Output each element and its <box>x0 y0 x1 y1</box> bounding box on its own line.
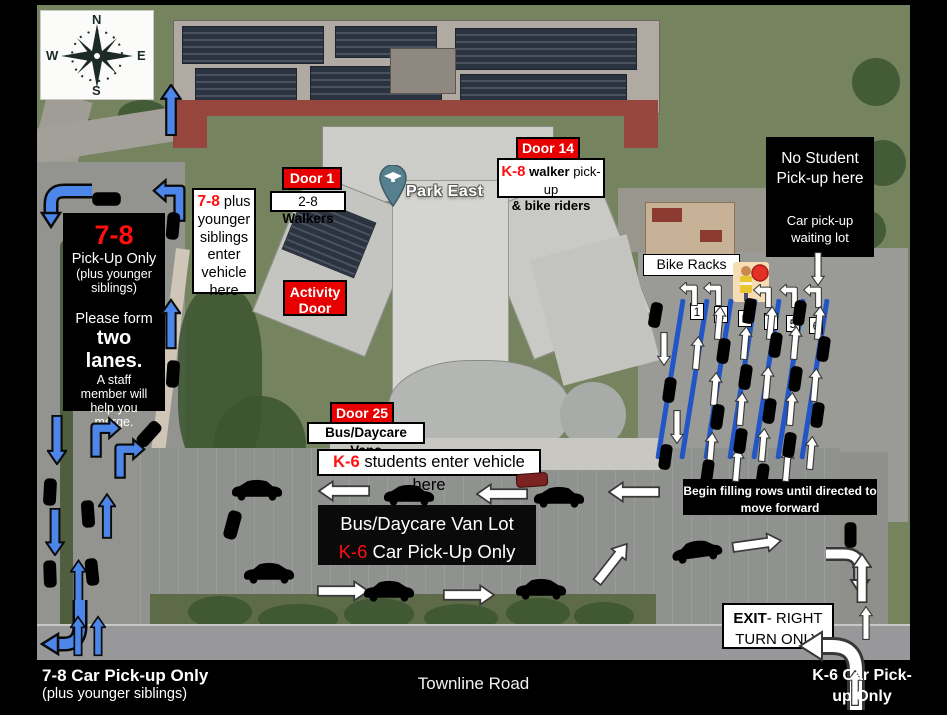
bus-daycare-vans-label: Bus/Daycare Vans <box>307 422 425 444</box>
car-icon <box>808 399 827 431</box>
no-student-box: No Student Pick-up here Car pick-up wait… <box>766 137 874 257</box>
car-icon <box>766 329 785 361</box>
door-25-text: Door 25 <box>336 405 388 421</box>
hook-left-arrow-icon <box>702 282 724 306</box>
pickup-78-panel: 7-8 Pick-Up Only (plus younger siblings)… <box>63 213 165 411</box>
k8-line2: & bike riders <box>499 198 603 215</box>
compass-e: E <box>137 48 146 63</box>
van-lot-grade: K-6 <box>339 541 368 562</box>
up-arrow-icon <box>805 367 826 402</box>
exit-bold: EXIT <box>733 610 766 627</box>
up-arrow-icon <box>852 552 872 604</box>
down-arrow-icon <box>668 410 686 444</box>
left-arrow-icon <box>608 481 660 503</box>
up-arrow-icon <box>687 335 708 370</box>
compass-s: S <box>92 83 101 98</box>
car-icon <box>786 363 805 395</box>
van-lot-text: Car Pick-Up Only <box>367 541 515 562</box>
up-arrow-icon <box>160 84 182 136</box>
car-icon <box>164 209 183 242</box>
down-arrow-icon <box>655 332 673 366</box>
car-icon <box>41 476 59 509</box>
walkers-28-label: 2-8 Walkers <box>270 191 346 212</box>
enter-78-grade: 7-8 <box>197 193 219 210</box>
car-icon <box>220 506 245 543</box>
k8-bold: walker <box>526 164 570 179</box>
car-icon <box>512 576 570 602</box>
car-icon <box>760 395 779 427</box>
right-arrow-icon <box>443 584 495 606</box>
panel-line: Please form <box>67 311 161 327</box>
down-arrow-icon <box>808 252 828 286</box>
down-arrow-icon <box>47 415 67 465</box>
car-icon <box>790 297 809 329</box>
k6-enter-box: K-6 students enter vehicle here <box>317 449 541 476</box>
no-student-title: No Student Pick-up here <box>772 149 868 189</box>
up-arrow-icon <box>753 427 774 462</box>
car-icon <box>736 361 755 393</box>
k8-grade: K-8 <box>501 163 525 180</box>
right-arrow-icon <box>727 530 787 558</box>
footer-right: K-6 Car Pick-up Only <box>810 666 914 708</box>
car-icon <box>814 333 833 365</box>
car-icon <box>646 299 666 331</box>
compass-rose: N S W E <box>40 10 154 100</box>
car-icon <box>228 477 286 503</box>
activity-door-label: Activity Door <box>283 280 347 316</box>
car-icon <box>740 295 759 327</box>
bike-racks-text: Bike Racks <box>656 256 726 272</box>
down-arrow-icon <box>45 508 65 556</box>
park-east-label: Park East <box>406 183 483 201</box>
up-arrow-icon <box>785 325 806 360</box>
car-icon <box>41 558 58 591</box>
compass-w: W <box>46 48 58 63</box>
walkers-bold: Walkers <box>282 211 333 226</box>
activity-door-text: Activity Door <box>290 284 341 316</box>
up-right-arrow-icon <box>587 535 637 591</box>
up-arrow-icon <box>735 325 756 360</box>
car-icon <box>360 578 418 604</box>
begin-filling-text: Begin filling rows until directed to mov… <box>683 484 876 515</box>
no-student-sub: Car pick-up waiting lot <box>778 213 862 247</box>
van-lot-line1: Bus/Daycare Van Lot <box>318 510 536 538</box>
car-icon <box>164 357 182 390</box>
up-arrow-icon <box>801 435 822 470</box>
enter-78-box: 7-8 plus younger siblings enter vehicle … <box>192 188 256 294</box>
left-arrow-icon <box>318 480 370 502</box>
walkers-range: 2-8 <box>298 194 318 209</box>
car-icon <box>714 335 733 367</box>
car-icon <box>91 191 123 208</box>
van-lot-box: Bus/Daycare Van Lot K-6 Car Pick-Up Only <box>318 505 536 565</box>
car-icon <box>656 441 675 473</box>
door-14-label: Door 14 <box>516 137 580 160</box>
up-arrow-icon <box>781 391 802 426</box>
up-arrow-icon <box>731 391 752 426</box>
door-1-label: Door 1 <box>282 167 342 190</box>
car-icon <box>82 555 101 588</box>
car-icon <box>79 497 97 530</box>
up-arrow-icon <box>161 296 181 352</box>
panel-line: Pick-Up Only <box>67 251 161 267</box>
curve-left-down-arrow-icon <box>40 180 94 228</box>
panel-line: two lanes. <box>67 327 161 373</box>
car-icon <box>380 482 438 508</box>
k8-pickup-box: K-8 walker pick-up & bike riders <box>497 158 605 198</box>
compass-n: N <box>92 12 101 27</box>
up-arrow-icon <box>98 492 116 540</box>
panel-line: (plus younger siblings) <box>67 267 161 295</box>
car-icon <box>240 560 298 586</box>
car-icon <box>530 484 588 510</box>
car-icon <box>516 472 549 488</box>
door-1-text: Door 1 <box>290 170 334 186</box>
car-icon <box>708 401 727 433</box>
car-icon <box>843 520 858 550</box>
bike-racks-label: Bike Racks <box>643 254 740 276</box>
door-14-text: Door 14 <box>522 140 574 156</box>
car-icon <box>660 374 679 406</box>
up-arrow-icon <box>90 614 106 658</box>
school-pin-icon <box>378 165 408 207</box>
hook-left-arrow-icon <box>678 282 700 306</box>
car-icon <box>666 534 727 568</box>
k6-enter-grade: K-6 <box>333 453 360 471</box>
up-arrow-icon <box>70 614 86 658</box>
footer-road-label: Townline Road <box>0 674 947 694</box>
